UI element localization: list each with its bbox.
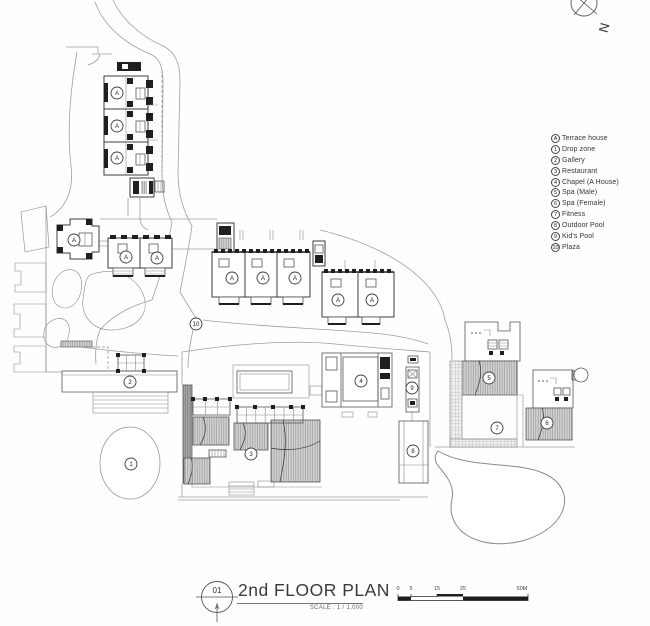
- legend-item-drop-zone: 1Drop zone: [551, 144, 619, 155]
- legend-key: A: [551, 134, 560, 143]
- north-label: N: [596, 21, 613, 34]
- spa-female-building: [526, 368, 588, 440]
- plan-marker-label: A: [155, 256, 159, 262]
- plan-marker-label: A: [230, 276, 234, 282]
- legend-key: 1: [551, 145, 560, 154]
- legend-label: Kid's Pool: [562, 233, 594, 240]
- legend-item-spa-male-: 5Spa (Male): [551, 187, 619, 198]
- sheet-number: 01: [213, 586, 222, 595]
- scale-bar-labels: 05152550M: [392, 586, 542, 594]
- legend-key: 2: [551, 156, 560, 165]
- legend-label: Restaurant: [562, 168, 597, 175]
- plan-marker-label: A: [261, 276, 265, 282]
- legend-item-restaurant: 3Restaurant: [551, 166, 619, 177]
- plan-marker-label: A: [370, 298, 374, 304]
- legend-label: Plaza: [562, 244, 580, 251]
- legend-item-plaza: 10Plaza: [551, 242, 619, 253]
- terrace-house-row-middle: [212, 223, 325, 305]
- sheet-letter: A: [215, 604, 220, 611]
- plan-marker-label: A: [72, 238, 76, 244]
- legend-key: 3: [551, 167, 560, 176]
- legend-label: Spa (Female): [562, 200, 606, 207]
- scale-bar: 05152550M: [392, 586, 542, 612]
- legend-item-chapel-a-house-: 4Chapel (A House): [551, 177, 619, 188]
- site-plan-drawing: AAAAAAAAAAA12345678910: [0, 0, 650, 626]
- scale-tick-label: 15: [434, 586, 440, 592]
- legend-item-terrace-house: ATerrace house: [551, 133, 619, 144]
- landscape-garden-shapes: [44, 270, 146, 348]
- sheet-title: 2nd FLOOR PLAN: [238, 580, 390, 601]
- legend-item-spa-female-: 6Spa (Female): [551, 198, 619, 209]
- north-arrow: N: [560, 0, 650, 46]
- scale-tick-label: 5: [409, 586, 412, 592]
- legend-key: 6: [551, 199, 560, 208]
- legend-key: 5: [551, 188, 560, 197]
- legend-item-outdoor-pool: 8Outdoor Pool: [551, 220, 619, 231]
- adjacent-lots-west: [14, 206, 49, 372]
- scale-bar-graphic: [392, 594, 542, 610]
- legend-label: Chapel (A House): [562, 179, 619, 186]
- legend-label: Fitness: [562, 211, 585, 218]
- plan-marker-label: A: [293, 276, 297, 282]
- legend-label: Spa (Male): [562, 189, 597, 196]
- title-block: 01 A 2nd FLOOR PLAN SCALE : 1 / 1,000: [190, 573, 385, 626]
- legend: ATerrace house1Drop zone2Gallery3Restaur…: [551, 133, 619, 253]
- plan-marker-label: A: [115, 156, 119, 162]
- plan-marker-label: A: [115, 124, 119, 130]
- legend-key: 8: [551, 221, 560, 230]
- restaurant-and-deck: [183, 365, 322, 495]
- plan-marker-label: A: [115, 91, 119, 97]
- plan-marker-label: A: [124, 255, 128, 261]
- plan-marker-label: 10: [193, 322, 200, 328]
- scale-tick-label: 25: [460, 586, 466, 592]
- legend-item-kid-s-pool: 9Kid's Pool: [551, 231, 619, 242]
- legend-key: 10: [551, 243, 560, 252]
- title-underline: [237, 603, 363, 604]
- legend-key: 4: [551, 178, 560, 187]
- legend-key: 7: [551, 210, 560, 219]
- sheet-scale: SCALE : 1 / 1,000: [237, 605, 363, 611]
- legend-label: Drop zone: [562, 146, 595, 153]
- plan-marker-label: A: [336, 298, 340, 304]
- scale-tick-label: 0: [396, 586, 399, 592]
- legend-item-gallery: 2Gallery: [551, 155, 619, 166]
- legend-label: Outdoor Pool: [562, 222, 604, 229]
- legend-label: Terrace house: [562, 135, 608, 142]
- legend-key: 9: [551, 232, 560, 241]
- scale-tick-label: 50M: [517, 586, 528, 592]
- legend-item-fitness: 7Fitness: [551, 209, 619, 220]
- legend-label: Gallery: [562, 157, 585, 164]
- pond: [435, 451, 564, 544]
- floor-plan-sheet: AAAAAAAAAAA12345678910 N ATerrace house1…: [0, 0, 650, 626]
